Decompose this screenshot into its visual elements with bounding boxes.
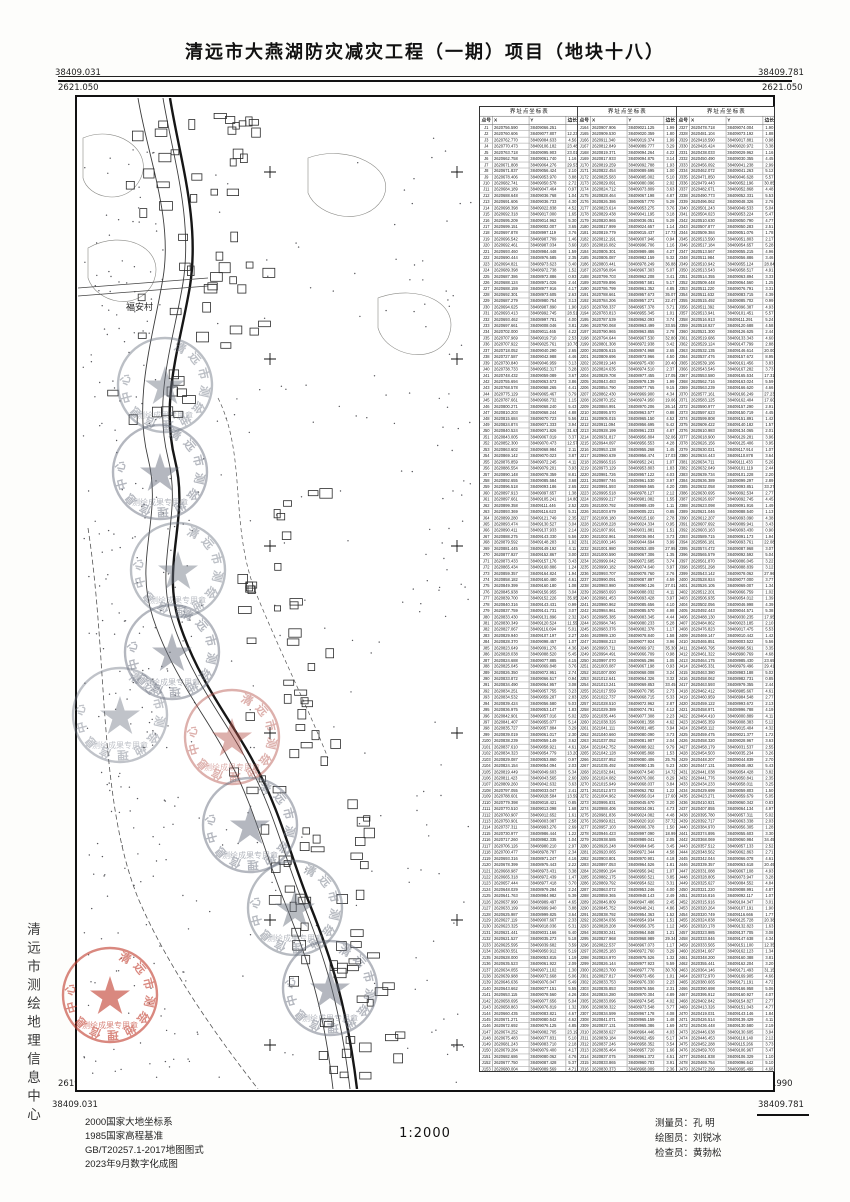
topographic-map: 福安村 xyxy=(78,98,477,1089)
corner-label-tr-easting: 38409.781 xyxy=(758,68,804,78)
bottom-right-rule xyxy=(757,1114,809,1116)
map-sheet: 清远市大燕湖防灾减灾工程（一期）项目（地块十八） 38409.031 2621.… xyxy=(0,0,850,1202)
roads xyxy=(78,278,328,1089)
datum-line: 2023年9月数字化成图 xyxy=(85,1158,204,1172)
footer: 2000国家大地坐标系 1985国家高程基准 GB/T20257.1-2017地… xyxy=(0,1108,850,1202)
table-header-row: 点号XY边长 xyxy=(677,116,774,124)
corner-label-tr-northing: 2621.050 xyxy=(762,83,803,93)
staff-line: 绘图员：刘锐冰 xyxy=(655,1131,722,1146)
producer-vertical-text: 清远市测绘地理信息中心 xyxy=(22,922,42,1126)
table-section-title: 界址点坐标表 xyxy=(480,107,577,116)
page-title: 清远市大燕湖防灾减灾工程（一期）项目（地块十八） xyxy=(0,38,850,64)
scale-label: 1:2000 xyxy=(355,1126,495,1141)
table-header-row: 点号XY边长 xyxy=(578,116,675,124)
datum-line: GB/T20257.1-2017地图图式 xyxy=(85,1144,204,1158)
contour-lines xyxy=(83,134,451,355)
staff-line: 测量员：孔 明 xyxy=(655,1116,722,1131)
title-rule xyxy=(58,76,792,82)
coordinate-table: 界址点坐标表点号XY边长J12620756.59038409066.251J22… xyxy=(479,106,775,1072)
datum-line: 2000国家大地坐标系 xyxy=(85,1116,204,1130)
table-group: 界址点坐标表点号XY边长J3272620478.71838409074.0041… xyxy=(676,107,774,1071)
table-section-title: 界址点坐标表 xyxy=(677,107,774,116)
table-group: 界址点坐标表点号XY边长J1642620907.90638409021.1251… xyxy=(577,107,675,1071)
corner-label-tl-northing: 2621.050 xyxy=(58,83,99,93)
table-section-title: 界址点坐标表 xyxy=(578,107,675,116)
staff-line: 检查员：黄勃松 xyxy=(655,1146,722,1161)
village-label: 福安村 xyxy=(126,301,153,312)
table-row: J3162620830.37338408968.0092.36 xyxy=(578,1066,675,1071)
buildings xyxy=(108,113,405,1079)
vegetation-dots xyxy=(83,138,472,1083)
corner-label-tl-easting: 38409.031 xyxy=(55,68,101,78)
table-group: 界址点坐标表点号XY边长J12620756.59038409066.251J22… xyxy=(480,107,577,1071)
table-header-row: 点号XY边长 xyxy=(480,116,577,124)
datum-block: 2000国家大地坐标系 1985国家高程基准 GB/T20257.1-2017地… xyxy=(85,1116,204,1172)
table-row: J1532620680.00438409089.5694.71 xyxy=(480,1066,577,1071)
datum-line: 1985国家高程基准 xyxy=(85,1130,204,1144)
table-row: J4792620472.29938409095.4994.68 xyxy=(677,1066,774,1071)
staff-block: 测量员：孔 明 绘图员：刘锐冰 检查员：黄勃松 xyxy=(655,1116,722,1161)
river xyxy=(138,98,357,1089)
